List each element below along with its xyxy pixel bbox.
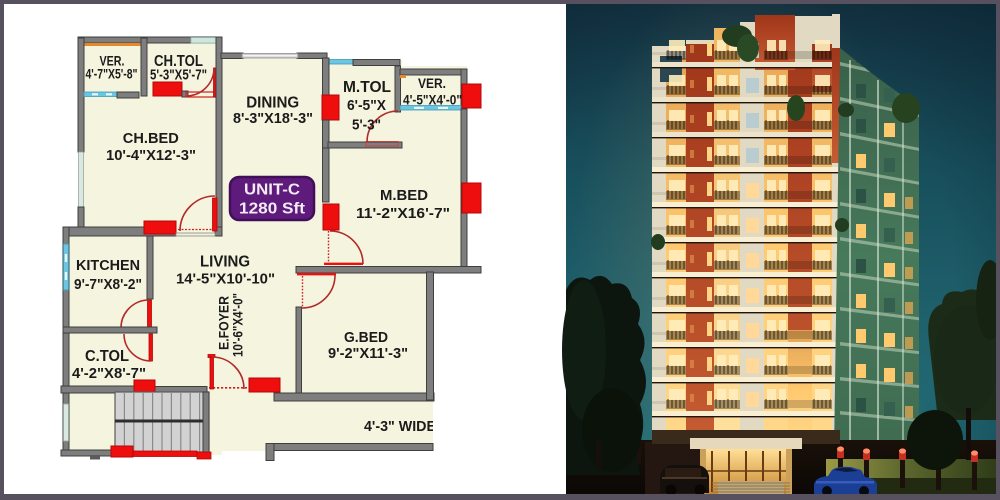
svg-text:8'-3"X18'-3": 8'-3"X18'-3" — [233, 110, 313, 127]
svg-text:G.BED: G.BED — [344, 329, 388, 346]
svg-text:4'-7"X5'-8": 4'-7"X5'-8" — [86, 66, 138, 82]
svg-text:CH.BED: CH.BED — [123, 131, 179, 147]
svg-text:10'-4"X12'-3": 10'-4"X12'-3" — [106, 147, 196, 164]
svg-text:14'-5"X10'-10": 14'-5"X10'-10" — [176, 271, 275, 288]
svg-text:9'-7"X8'-2": 9'-7"X8'-2" — [74, 277, 142, 293]
svg-text:9'-2"X11'-3": 9'-2"X11'-3" — [328, 345, 408, 362]
svg-text:4'-2"X8'-7": 4'-2"X8'-7" — [72, 365, 146, 382]
svg-text:1280 Sft: 1280 Sft — [239, 201, 306, 218]
svg-text:4'-5"X4'-0": 4'-5"X4'-0" — [403, 92, 462, 108]
svg-text:M.BED: M.BED — [380, 187, 428, 204]
svg-text:KITCHEN: KITCHEN — [76, 258, 140, 274]
svg-text:4'-3" WIDE: 4'-3" WIDE — [364, 418, 436, 435]
svg-text:6'-5"X: 6'-5"X — [347, 97, 386, 114]
svg-text:DINING: DINING — [246, 95, 299, 112]
svg-text:C.TOL: C.TOL — [85, 348, 129, 365]
svg-text:5'-3": 5'-3" — [352, 117, 381, 134]
svg-text:VER.: VER. — [418, 75, 446, 91]
svg-text:E.FOYER: E.FOYER — [217, 296, 232, 350]
svg-text:5'-3"X5'-7": 5'-3"X5'-7" — [150, 68, 207, 84]
svg-text:UNIT-C: UNIT-C — [244, 182, 300, 199]
svg-text:11'-2"X16'-7": 11'-2"X16'-7" — [356, 205, 450, 222]
svg-text:M.TOL: M.TOL — [343, 79, 391, 96]
svg-text:10'-6"X4'-0": 10'-6"X4'-0" — [231, 293, 246, 357]
svg-text:LIVING: LIVING — [200, 254, 250, 271]
